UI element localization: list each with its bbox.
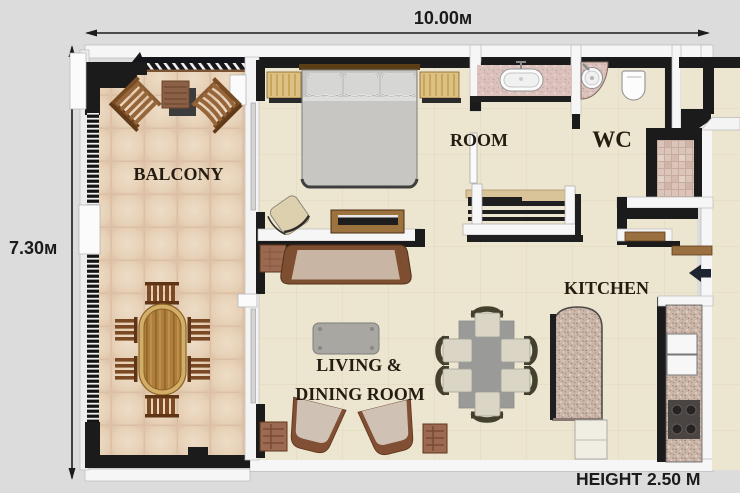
- svg-text:HEIGHT 2.50 M: HEIGHT 2.50 M: [576, 469, 700, 489]
- svg-text:7.30м: 7.30м: [9, 238, 57, 258]
- svg-text:KITCHEN: KITCHEN: [564, 278, 649, 298]
- svg-text:BALCONY: BALCONY: [133, 164, 223, 184]
- svg-text:10.00м: 10.00м: [414, 8, 472, 28]
- svg-text:LIVING &: LIVING &: [316, 355, 402, 375]
- svg-text:DINING ROOM: DINING ROOM: [295, 384, 425, 404]
- svg-text:WC: WC: [592, 127, 632, 152]
- svg-text:ROOM: ROOM: [450, 130, 508, 150]
